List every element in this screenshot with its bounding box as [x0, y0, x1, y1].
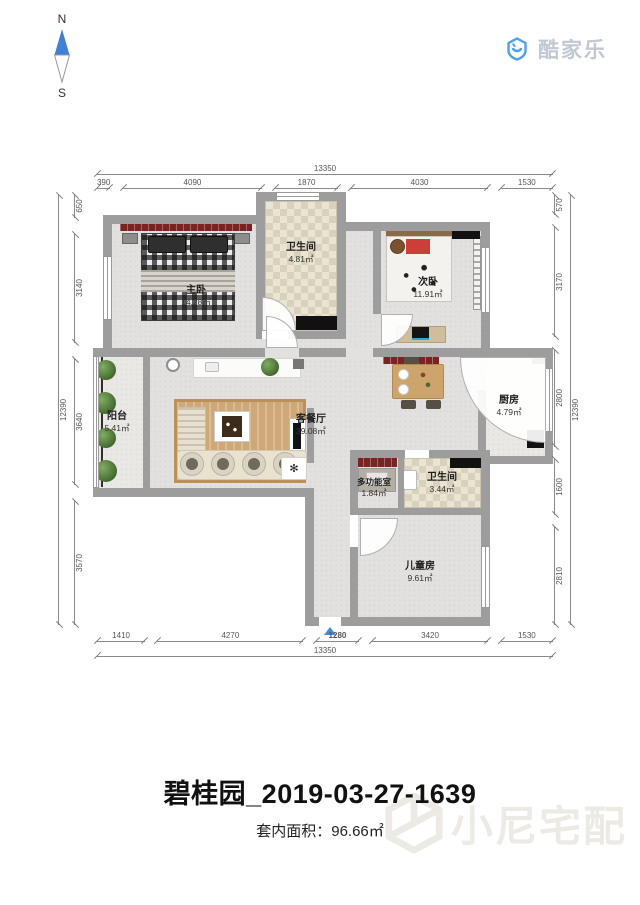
room-label-kids: 儿童房 9.61㎡: [384, 560, 456, 584]
dimension-value: 13350: [314, 647, 336, 655]
dimension-value: 1600: [556, 478, 564, 496]
wall: [305, 488, 314, 625]
dimension-value: 4030: [411, 179, 429, 187]
room-name: 主卧: [150, 284, 242, 297]
dimension-segment: 13350: [97, 647, 553, 657]
room-area: 11.91㎡: [392, 289, 464, 300]
floor-plan: [0, 0, 640, 700]
cushion: [248, 458, 260, 470]
window: [103, 256, 112, 320]
wall: [305, 617, 319, 626]
dimension-segment: 2810: [554, 527, 564, 625]
bathtub: [296, 316, 338, 330]
dimension-bottom-total: 13350: [97, 645, 553, 657]
room-area: 5.41㎡: [94, 423, 140, 434]
cushion: [217, 458, 229, 470]
dimension-value: 12390: [572, 399, 580, 421]
dimension-value: 1870: [298, 179, 316, 187]
plate: [398, 369, 409, 380]
dimension-value: 1410: [112, 632, 130, 640]
dimension-top-segments: 3904090187040301530: [97, 177, 553, 189]
floor-lamp: [166, 358, 180, 372]
dimension-segment: 1600: [554, 459, 564, 515]
dimension-segment: 2800: [554, 350, 564, 447]
dimension-segment: 13350: [97, 165, 553, 175]
dimension-value: 1530: [518, 632, 536, 640]
dimension-value: 4270: [221, 632, 239, 640]
window: [481, 546, 490, 608]
dining-chair: [426, 400, 441, 409]
nightstand: [234, 233, 250, 244]
cabinet: [356, 458, 397, 467]
window: [545, 368, 553, 432]
window: [481, 247, 490, 313]
room-label-master: 主卧 14.28㎡: [150, 284, 242, 308]
wall: [350, 508, 490, 515]
wall: [93, 488, 312, 497]
dimension-left-total: 12390: [58, 195, 70, 625]
plan-title: 碧桂园_2019-03-27-1639: [0, 772, 640, 811]
potted-plant: [261, 358, 279, 376]
appliance: [293, 359, 304, 369]
dimension-value: 1280: [329, 632, 347, 640]
wall: [103, 215, 265, 224]
pillow: [148, 236, 186, 253]
door-opening: [346, 348, 373, 357]
dimension-segment: 4030: [351, 179, 489, 189]
door-opening: [319, 617, 341, 626]
dimension-segment: 12390: [58, 195, 68, 625]
window: [276, 192, 320, 201]
dimension-segment: 3640: [74, 359, 84, 485]
dimension-value: 2810: [556, 567, 564, 585]
room-name: 儿童房: [384, 560, 456, 573]
door-opening: [350, 515, 358, 547]
room-name: 客餐厅: [296, 413, 374, 426]
dimension-value: 3570: [76, 554, 84, 572]
plant: [96, 360, 116, 380]
wall: [373, 222, 381, 314]
dimension-segment: 3170: [554, 227, 564, 337]
dimension-value: 13350: [314, 165, 336, 173]
door-opening: [265, 348, 299, 357]
dimension-value: 4090: [184, 179, 202, 187]
plan-area-summary: 套内面积：96.66㎡: [0, 820, 640, 841]
chaise-sofa: [177, 407, 206, 453]
red-pillow: [406, 239, 430, 254]
room-label-multifunction: 多功能室 1.84㎡: [340, 477, 408, 499]
nightstand: [122, 233, 138, 244]
dimension-segment: 1530: [501, 632, 553, 642]
wall: [481, 456, 553, 464]
room-area: 39.08㎡: [296, 426, 374, 437]
room-name: 卫生间: [263, 241, 339, 254]
coffee-table-top: [222, 416, 242, 437]
dimension-segment: 1870: [275, 179, 339, 189]
dimension-segment: 3420: [372, 632, 489, 642]
dimension-segment: 570: [554, 195, 564, 215]
door-opening: [405, 450, 429, 458]
cushion: [186, 458, 198, 470]
dimension-value: 2800: [556, 389, 564, 407]
sink: [205, 362, 219, 372]
dining-chair: [401, 400, 416, 409]
room-name: 厨房: [478, 394, 540, 407]
headboard: [120, 224, 252, 231]
dimension-bottom-segments: 14104270128034201530: [97, 630, 553, 642]
dimension-segment: 1530: [501, 179, 553, 189]
room-area: 3.44㎡: [406, 484, 478, 495]
room-label-kitchen: 厨房 4.79㎡: [478, 394, 540, 418]
room-area: 4.81㎡: [263, 254, 339, 265]
room-label-balcony: 阳台 5.41㎡: [94, 410, 140, 434]
room-label-bathroom-top: 卫生间 4.81㎡: [263, 241, 339, 265]
dimension-value: 1530: [518, 179, 536, 187]
room-label-bathroom2: 卫生间 3.44㎡: [406, 471, 478, 495]
room-name: 次卧: [392, 276, 464, 289]
dimension-value: 3170: [556, 273, 564, 291]
teddy-bear: [390, 239, 405, 254]
dimension-value: 12390: [60, 399, 68, 421]
dimension-value: 3640: [76, 413, 84, 431]
room-area: 14.28㎡: [150, 297, 242, 308]
computer: [412, 327, 429, 340]
dimension-value: 3420: [421, 632, 439, 640]
dimension-value: 570: [556, 198, 564, 211]
wardrobe: [473, 236, 481, 310]
dimension-segment: 1280: [316, 632, 360, 642]
room-label-bedroom2: 次卧 11.91㎡: [392, 276, 464, 300]
room-area: 1.84㎡: [340, 488, 408, 499]
area-label: 套内面积：: [256, 823, 331, 840]
wall: [337, 192, 346, 339]
floor-corridor: [314, 488, 350, 624]
dimension-segment: 4270: [157, 632, 303, 642]
dimension-value: 650: [76, 200, 84, 213]
room-name: 卫生间: [406, 471, 478, 484]
dimension-segment: 3140: [74, 234, 84, 343]
room-name: 阳台: [94, 410, 140, 423]
dimension-right-total: 12390: [570, 195, 582, 625]
room-area: 4.79㎡: [478, 407, 540, 418]
area-value: 96.66㎡: [331, 823, 384, 840]
wall: [346, 222, 490, 231]
dimension-value: 390: [97, 179, 110, 187]
dimension-top-total: 13350: [97, 163, 553, 175]
floorplan-page: N S 酷家乐 主卧 14.28㎡ 卫生间 4.81㎡ 次卧 11.91㎡ 阳台…: [0, 0, 640, 905]
dimension-segment: 4090: [123, 179, 263, 189]
dimension-value: 3140: [76, 279, 84, 297]
dimension-segment: 1410: [97, 632, 145, 642]
room-label-living: 客餐厅 39.08㎡: [296, 413, 374, 437]
plate: [398, 384, 409, 395]
dimension-segment: 390: [97, 179, 110, 189]
dimension-left-segments: 650314036403570: [74, 195, 86, 625]
dimension-segment: 650: [74, 195, 84, 218]
dimension-segment: 3570: [74, 501, 84, 625]
dimension-right-segments: 5703170280016002810: [554, 195, 566, 625]
bath-counter: [450, 457, 481, 468]
wall: [350, 617, 490, 626]
wall: [143, 357, 150, 497]
dimension-segment: 12390: [570, 195, 580, 625]
pillow: [190, 236, 228, 253]
room-area: 9.61㎡: [384, 573, 456, 584]
side-table: [281, 457, 307, 480]
room-name: 多功能室: [340, 477, 408, 488]
